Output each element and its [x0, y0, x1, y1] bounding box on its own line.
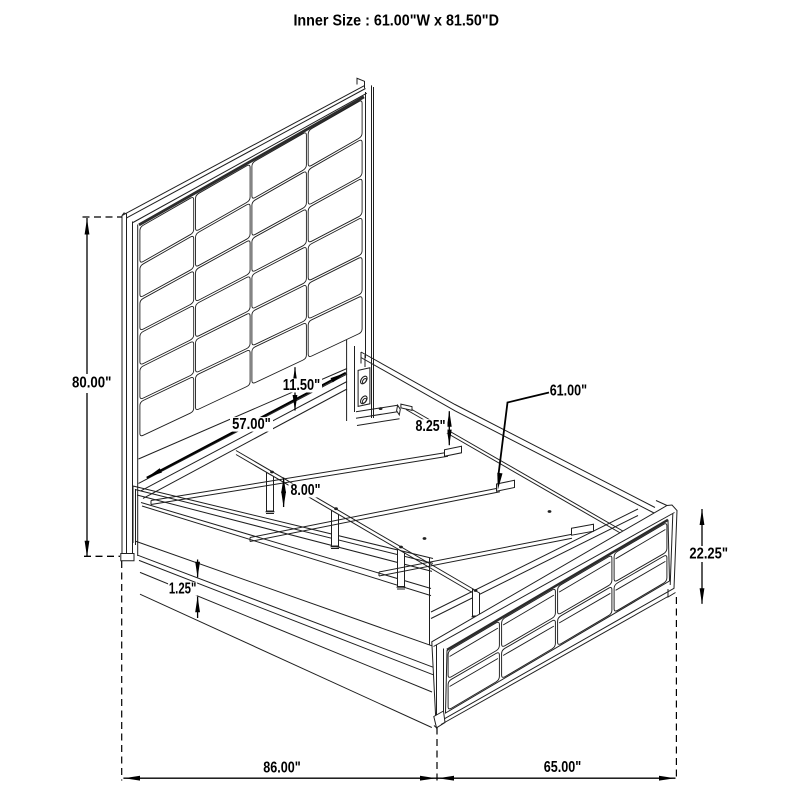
svg-text:61.00": 61.00": [550, 382, 587, 399]
svg-text:86.00": 86.00": [263, 760, 301, 777]
svg-text:1.25": 1.25": [169, 581, 197, 598]
svg-text:65.00": 65.00": [544, 759, 582, 776]
svg-text:8.25": 8.25": [416, 418, 446, 435]
svg-text:80.00": 80.00": [72, 375, 111, 392]
svg-text:57.00": 57.00": [232, 416, 271, 433]
svg-text:8.00": 8.00": [291, 482, 321, 499]
svg-text:11.50": 11.50": [283, 377, 320, 394]
svg-text:22.25": 22.25": [689, 546, 728, 563]
svg-text:Inner Size : 61.00"W x 81.50"D: Inner Size : 61.00"W x 81.50"D: [293, 13, 499, 30]
